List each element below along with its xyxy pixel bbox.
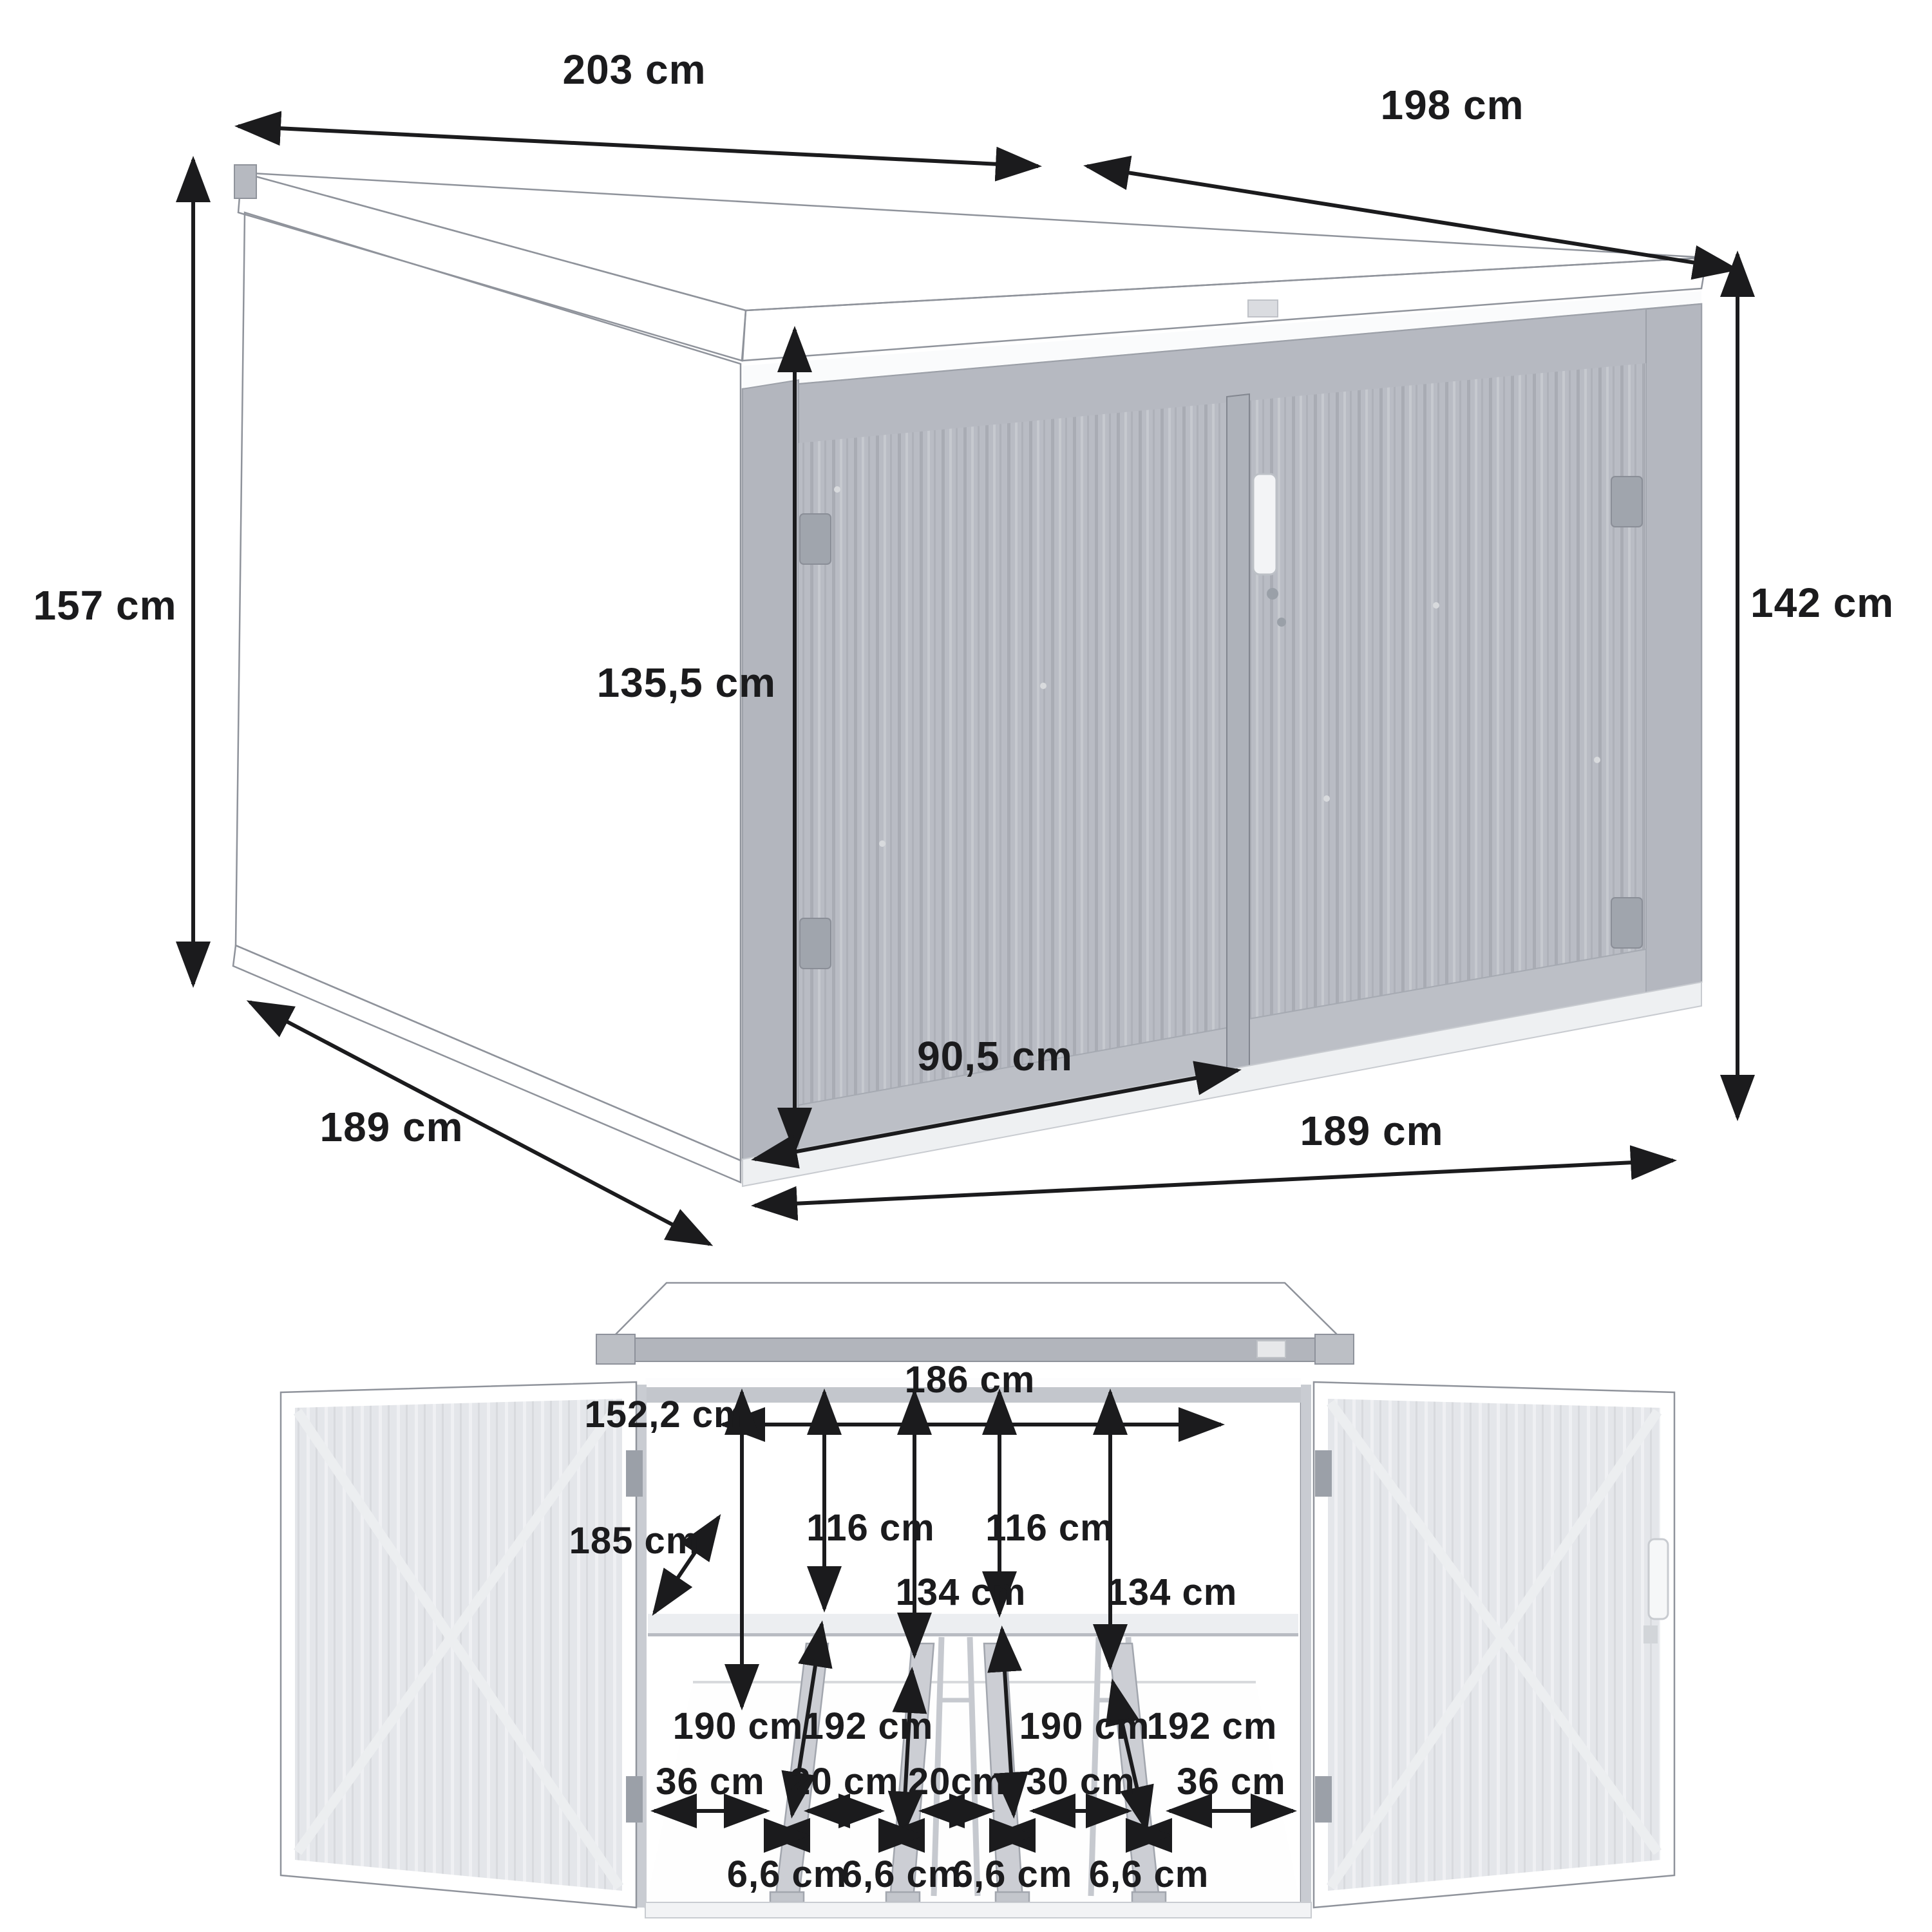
interior-shelf [648, 1614, 1298, 1633]
label-rail-length-4: 192 cm [1147, 1705, 1278, 1747]
label-rail-length-2: 192 cm [803, 1705, 934, 1747]
label-hook-height-right: 116 cm [985, 1507, 1114, 1549]
eave-cap-right [1315, 1334, 1354, 1364]
front-corner-trim-left [743, 380, 799, 1159]
dim-front-width [755, 1160, 1673, 1206]
label-rail-length-1: 190 cm [673, 1705, 804, 1747]
label-height-front: 142 cm [1750, 580, 1894, 626]
label-gap-rail-2-3: 20cm [908, 1761, 1006, 1803]
label-front-width: 189 cm [1300, 1108, 1443, 1154]
label-gap-left-wall: 36 cm [656, 1761, 764, 1803]
label-interior-height: 152,2 cm [584, 1394, 747, 1435]
hinge-icon [1315, 1450, 1332, 1497]
corner-post-right [1301, 1385, 1311, 1908]
label-gap-right-wall: 36 cm [1177, 1761, 1285, 1803]
front-roof-eave [599, 1338, 1354, 1361]
label-gap-rail-3-4: 30 cm [1026, 1761, 1135, 1803]
front-open-view: 186 cm 152,2 cm 116 cm 116 cm 134 cm 134… [281, 1283, 1674, 1918]
label-hook-height-left: 116 cm [806, 1507, 935, 1549]
dim-roof-front [1087, 166, 1736, 269]
shed-dimension-diagram: 203 cm 198 cm 157 cm 142 cm 135,5 cm 90,… [0, 0, 1932, 1932]
label-rail-width-4: 6,6 cm [1089, 1853, 1209, 1895]
label-rail-length-3: 190 cm [1019, 1705, 1150, 1747]
brand-label-plate [1257, 1341, 1285, 1358]
label-depth: 189 cm [319, 1104, 463, 1150]
label-shelf-height-left: 134 cm [896, 1571, 1027, 1613]
keyhole-icon [1277, 618, 1286, 627]
hinge-icon [1611, 477, 1642, 527]
dim-depth [250, 1002, 710, 1244]
label-roof-side-length: 203 cm [562, 46, 706, 93]
label-roof-front-length: 198 cm [1380, 82, 1524, 128]
door-handle-icon [1649, 1539, 1668, 1619]
label-rail-width-1: 6,6 cm [727, 1853, 848, 1895]
shed-side-sill [233, 945, 741, 1182]
label-height-rear: 157 cm [33, 582, 176, 629]
door-center-stile [1227, 394, 1249, 1070]
open-door-right [1314, 1382, 1674, 1908]
diagram-page: 203 cm 198 cm 157 cm 142 cm 135,5 cm 90,… [0, 0, 1932, 1932]
hinge-icon [1315, 1776, 1332, 1823]
hinge-icon [1611, 898, 1642, 948]
hinge-icon [626, 1776, 643, 1823]
door-latch-icon [1643, 1625, 1658, 1643]
front-roof-top [612, 1283, 1341, 1338]
front-base-sill [645, 1902, 1311, 1918]
keyhole-icon [1267, 588, 1278, 600]
hinge-icon [626, 1450, 643, 1497]
label-interior-depth: 185 cm [569, 1520, 700, 1562]
eave-cap-left [596, 1334, 635, 1364]
roof-end-cap [234, 165, 256, 198]
brand-label-plate [1248, 300, 1278, 317]
label-rail-width-2: 6,6 cm [842, 1853, 962, 1895]
label-door-height: 135,5 cm [597, 659, 776, 706]
label-door-width: 90,5 cm [917, 1033, 1073, 1079]
shed-roof-top [241, 173, 1707, 310]
front-frame-right [1646, 304, 1701, 993]
hinge-icon [800, 514, 831, 564]
open-door-left [281, 1382, 643, 1908]
label-gap-rail-1-2: 20 cm [790, 1761, 898, 1803]
label-rail-width-3: 6,6 cm [952, 1853, 1073, 1895]
label-interior-width: 186 cm [905, 1359, 1036, 1401]
door-handle-icon [1253, 474, 1276, 574]
interior-shelf-shadow [648, 1633, 1298, 1636]
label-shelf-height-right: 134 cm [1107, 1571, 1238, 1613]
hinge-icon [800, 918, 831, 969]
perspective-view: 203 cm 198 cm 157 cm 142 cm 135,5 cm 90,… [33, 46, 1894, 1244]
dim-roof-side [238, 126, 1038, 166]
shed-roof-fascia-left [238, 173, 746, 361]
